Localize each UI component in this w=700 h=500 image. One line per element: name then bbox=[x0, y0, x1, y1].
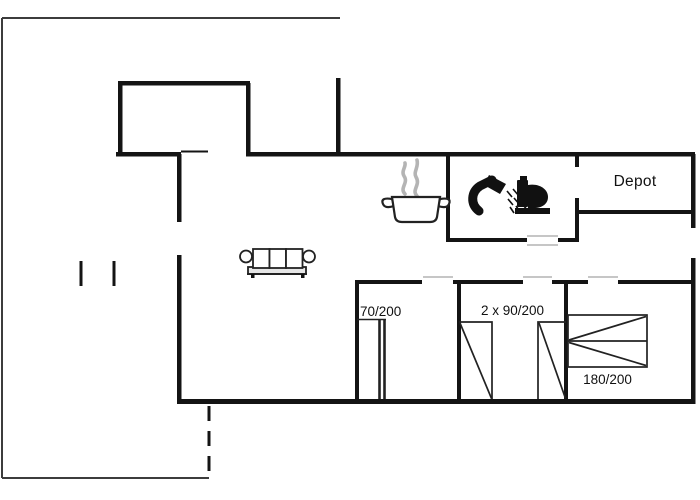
door-threshold-markers bbox=[423, 236, 618, 277]
depot-room-label: Depot bbox=[579, 174, 691, 190]
steam-icon bbox=[403, 160, 417, 196]
beds-90-label: 2 x 90/200 bbox=[459, 304, 566, 318]
bed-90-left-diagonal bbox=[460, 323, 492, 399]
sofa-cushion-2 bbox=[270, 249, 287, 268]
sofa-foot-right bbox=[301, 274, 305, 278]
property-boundary-lines bbox=[2, 18, 340, 478]
bed-180-label: 180/200 bbox=[568, 373, 647, 387]
floorplan-canvas: Depot 70/200 2 x 90/200 180/200 bbox=[0, 0, 700, 500]
sofa-cushion-1 bbox=[253, 249, 270, 268]
floorplan-drawing bbox=[0, 0, 700, 500]
cooking-pot-icon bbox=[382, 160, 449, 222]
toilet-icon bbox=[515, 176, 550, 214]
bed-90-right-diagonal bbox=[539, 323, 566, 399]
bed-180x200 bbox=[568, 315, 647, 367]
bed-70-label: 70/200 bbox=[360, 305, 401, 319]
toilet-tank bbox=[517, 180, 528, 207]
sofa-cushion-3 bbox=[286, 249, 303, 268]
annex-walls bbox=[118, 83, 250, 156]
bed-70x200 bbox=[357, 319, 386, 399]
sofa-icon bbox=[240, 249, 315, 278]
bathroom-door-marker bbox=[527, 236, 558, 245]
walls bbox=[81, 78, 696, 478]
fence-tick-marks bbox=[81, 261, 114, 286]
toilet-base bbox=[515, 208, 550, 214]
bed-90x200-left bbox=[459, 322, 492, 399]
pot-outline bbox=[392, 197, 440, 222]
sofa-foot-left bbox=[251, 274, 255, 278]
toilet-bowl bbox=[528, 185, 548, 208]
sofa-armrest-left bbox=[240, 251, 252, 263]
sofa-armrest-right bbox=[303, 251, 315, 263]
bed-70-side-lines bbox=[380, 319, 385, 399]
pot-body bbox=[382, 197, 449, 222]
bed-90x200-right bbox=[538, 322, 566, 399]
